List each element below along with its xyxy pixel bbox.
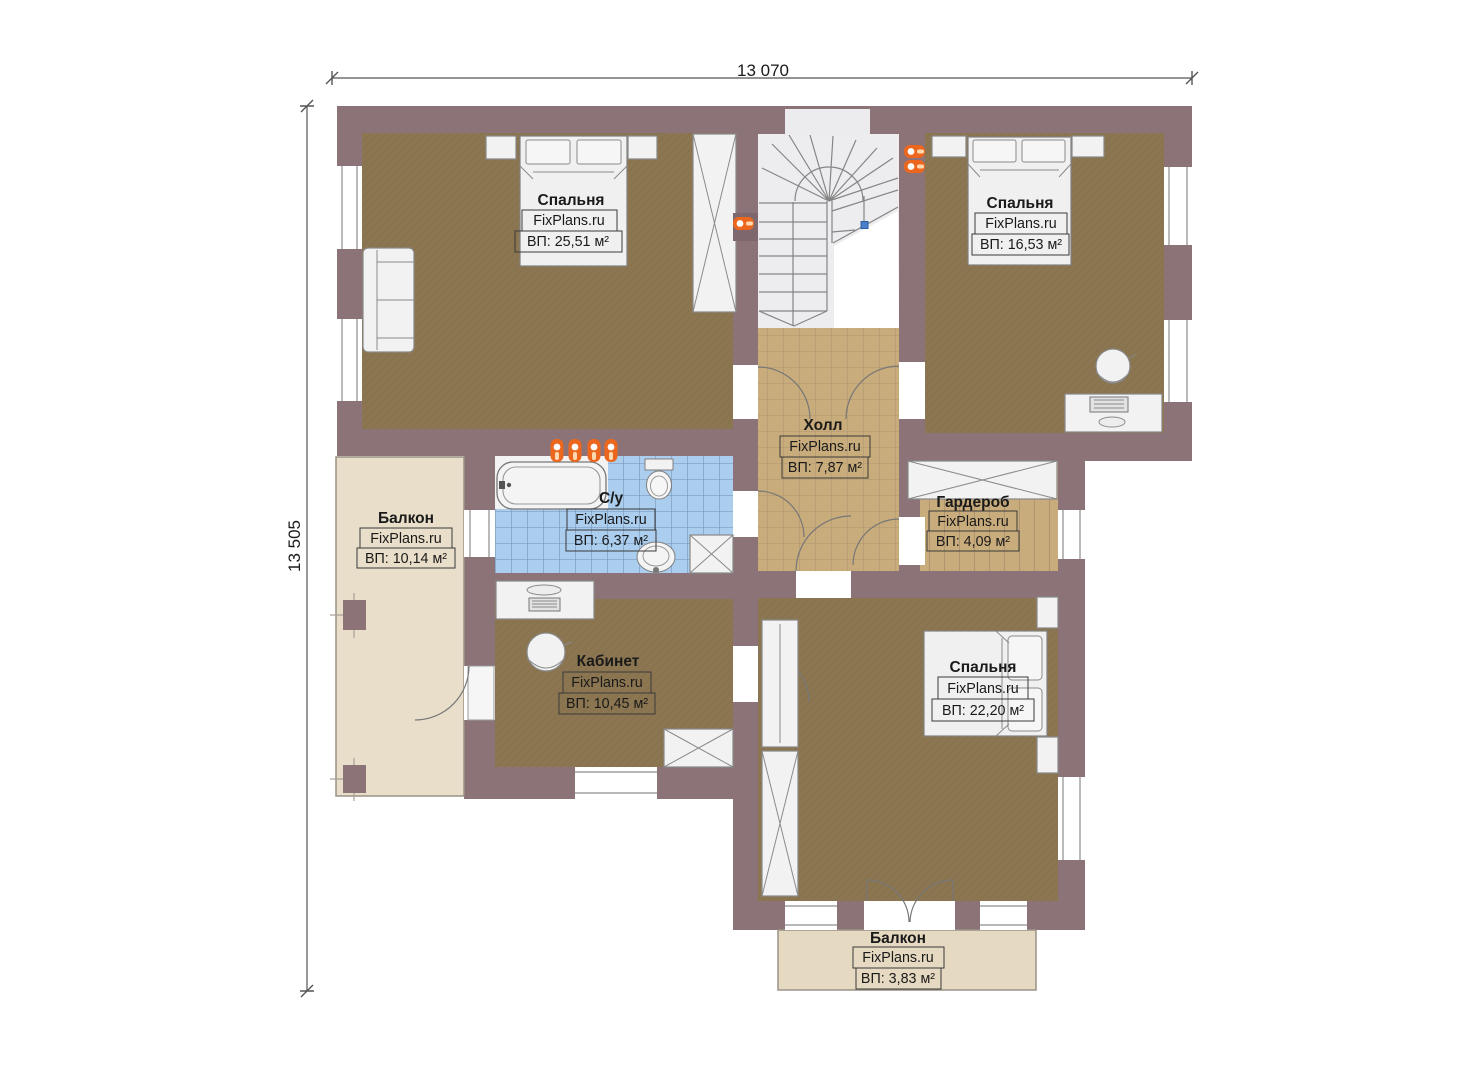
svg-text:Холл: Холл (804, 417, 843, 434)
svg-text:FixPlans.ru: FixPlans.ru (947, 681, 1019, 697)
svg-text:Кабинет: Кабинет (577, 653, 640, 670)
svg-text:ВП: 10,14 м²: ВП: 10,14 м² (365, 551, 447, 567)
svg-text:ВП: 4,09 м²: ВП: 4,09 м² (936, 534, 1010, 550)
svg-text:Гардероб: Гардероб (936, 494, 1009, 511)
svg-text:FixPlans.ru: FixPlans.ru (370, 531, 442, 547)
svg-text:Балкон: Балкон (378, 510, 434, 527)
svg-text:ВП: 7,87 м²: ВП: 7,87 м² (788, 460, 862, 476)
svg-text:Балкон: Балкон (870, 930, 926, 947)
svg-text:ВП: 3,83 м²: ВП: 3,83 м² (861, 971, 935, 987)
svg-text:С/у: С/у (599, 490, 624, 507)
svg-text:ВП: 10,45 м²: ВП: 10,45 м² (566, 696, 648, 712)
svg-text:13 505: 13 505 (285, 520, 304, 572)
svg-text:FixPlans.ru: FixPlans.ru (533, 213, 605, 229)
svg-text:Спальня: Спальня (950, 659, 1017, 676)
svg-text:ВП: 22,20 м²: ВП: 22,20 м² (942, 703, 1024, 719)
svg-text:Спальня: Спальня (538, 192, 605, 209)
svg-text:ВП: 25,51 м²: ВП: 25,51 м² (527, 234, 609, 250)
svg-text:13 070: 13 070 (737, 61, 789, 80)
svg-text:FixPlans.ru: FixPlans.ru (789, 439, 861, 455)
svg-text:FixPlans.ru: FixPlans.ru (575, 512, 647, 528)
svg-text:FixPlans.ru: FixPlans.ru (985, 216, 1057, 232)
svg-text:ВП: 16,53 м²: ВП: 16,53 м² (980, 237, 1062, 253)
svg-text:FixPlans.ru: FixPlans.ru (571, 675, 643, 691)
svg-text:FixPlans.ru: FixPlans.ru (937, 514, 1009, 530)
svg-text:FixPlans.ru: FixPlans.ru (862, 950, 934, 966)
svg-text:ВП: 6,37 м²: ВП: 6,37 м² (574, 533, 648, 549)
svg-text:Спальня: Спальня (987, 195, 1054, 212)
